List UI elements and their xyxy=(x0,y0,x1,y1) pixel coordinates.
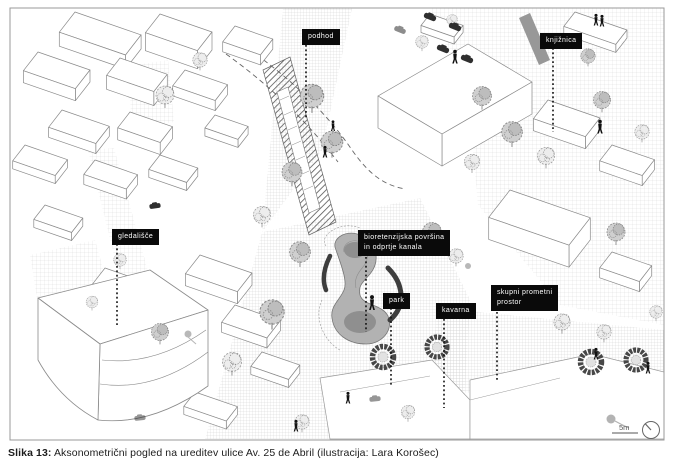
building-block xyxy=(59,12,141,69)
label-podhod: podhod xyxy=(302,29,340,45)
building-block xyxy=(185,255,252,304)
label-skupni-line1: skupni prometni xyxy=(497,288,552,298)
label-knjiznica: knjižnica xyxy=(540,33,582,49)
building-block xyxy=(34,205,83,241)
building-block xyxy=(49,110,110,154)
axonometric-illustration: 5m xyxy=(0,0,673,468)
figure-caption: Slika 13: Aksonometrični pogled na uredi… xyxy=(8,447,668,459)
building-block xyxy=(23,52,90,101)
figure-container: 5m podhod knjižnica gledališče bioretenz… xyxy=(0,0,673,468)
label-kavarna-text: kavarna xyxy=(442,307,470,314)
label-bioretenzijska-line1: bioretenzijska površina xyxy=(364,233,444,243)
building-block xyxy=(173,70,228,111)
label-gledalisce: gledališče xyxy=(112,229,159,245)
label-podhod-text: podhod xyxy=(308,33,334,40)
label-skupni-line2: prostor xyxy=(497,298,552,308)
label-park: park xyxy=(383,293,410,309)
label-gledalisce-text: gledališče xyxy=(118,233,153,240)
building-block xyxy=(223,26,273,65)
caption-number: Slika 13: xyxy=(8,447,52,459)
building-block xyxy=(84,160,138,199)
label-bioretenzijska: bioretenzijska površina in odprtje kanal… xyxy=(358,230,450,256)
theatre-building xyxy=(38,270,208,421)
label-park-text: park xyxy=(389,297,404,304)
label-knjiznica-text: knjižnica xyxy=(546,37,576,44)
building-block xyxy=(205,115,248,147)
building-block xyxy=(13,145,68,184)
building-block xyxy=(149,155,198,191)
north-indicator-icon xyxy=(643,422,660,439)
label-skupni-prometni-prostor: skupni prometni prostor xyxy=(491,285,558,311)
label-bioretenzijska-line2: in odprtje kanala xyxy=(364,243,444,253)
label-kavarna: kavarna xyxy=(436,303,476,319)
scale-label: 5m xyxy=(619,423,629,432)
caption-text: Aksonometrični pogled na ureditev ulice … xyxy=(52,447,439,459)
